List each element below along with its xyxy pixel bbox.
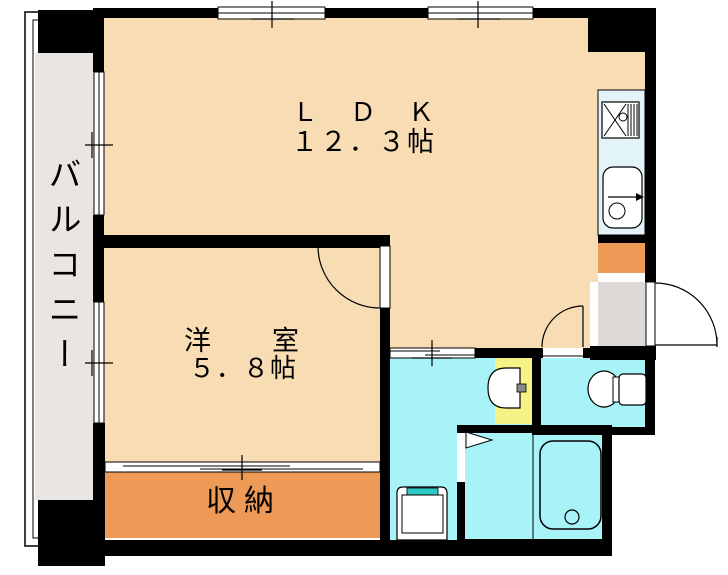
wall [598, 235, 648, 243]
wall [532, 427, 655, 435]
wall-pillar-top-left [38, 10, 104, 53]
western-room-size-label: ５．８帖 [189, 356, 297, 382]
entry-floor [598, 282, 645, 348]
washing-machine-icon [397, 487, 447, 540]
wall [590, 346, 656, 360]
ldk-size-label: １２．３帖 [291, 129, 436, 156]
bathroom-door-opening [457, 433, 465, 482]
wall [532, 348, 541, 427]
western-room-label: 洋 室 [184, 328, 316, 355]
floorplan-image: バルコニー ＬＤＫ １２．３帖 洋 室 ５．８帖 収納 [0, 0, 728, 575]
wall [93, 540, 612, 556]
wall [93, 215, 104, 302]
wall-pillar-bottom-left [38, 500, 105, 566]
door-entrance [646, 282, 717, 347]
wall [325, 8, 428, 18]
balcony-label: バルコニー [46, 157, 79, 382]
entry-step [590, 282, 598, 348]
gas-stove-icon [602, 102, 639, 138]
entry-threshold [598, 273, 645, 282]
floorplan-drawing [0, 0, 728, 575]
storage-label: 収納 [206, 487, 282, 517]
wall [533, 8, 588, 18]
wall [93, 8, 218, 18]
wall [93, 423, 105, 500]
ldk-label: ＬＤＫ [292, 100, 466, 126]
entry-cabinet [598, 243, 648, 273]
kitchen-sink-icon [603, 167, 644, 228]
wall [93, 235, 390, 248]
washbasin-icon [488, 368, 526, 408]
